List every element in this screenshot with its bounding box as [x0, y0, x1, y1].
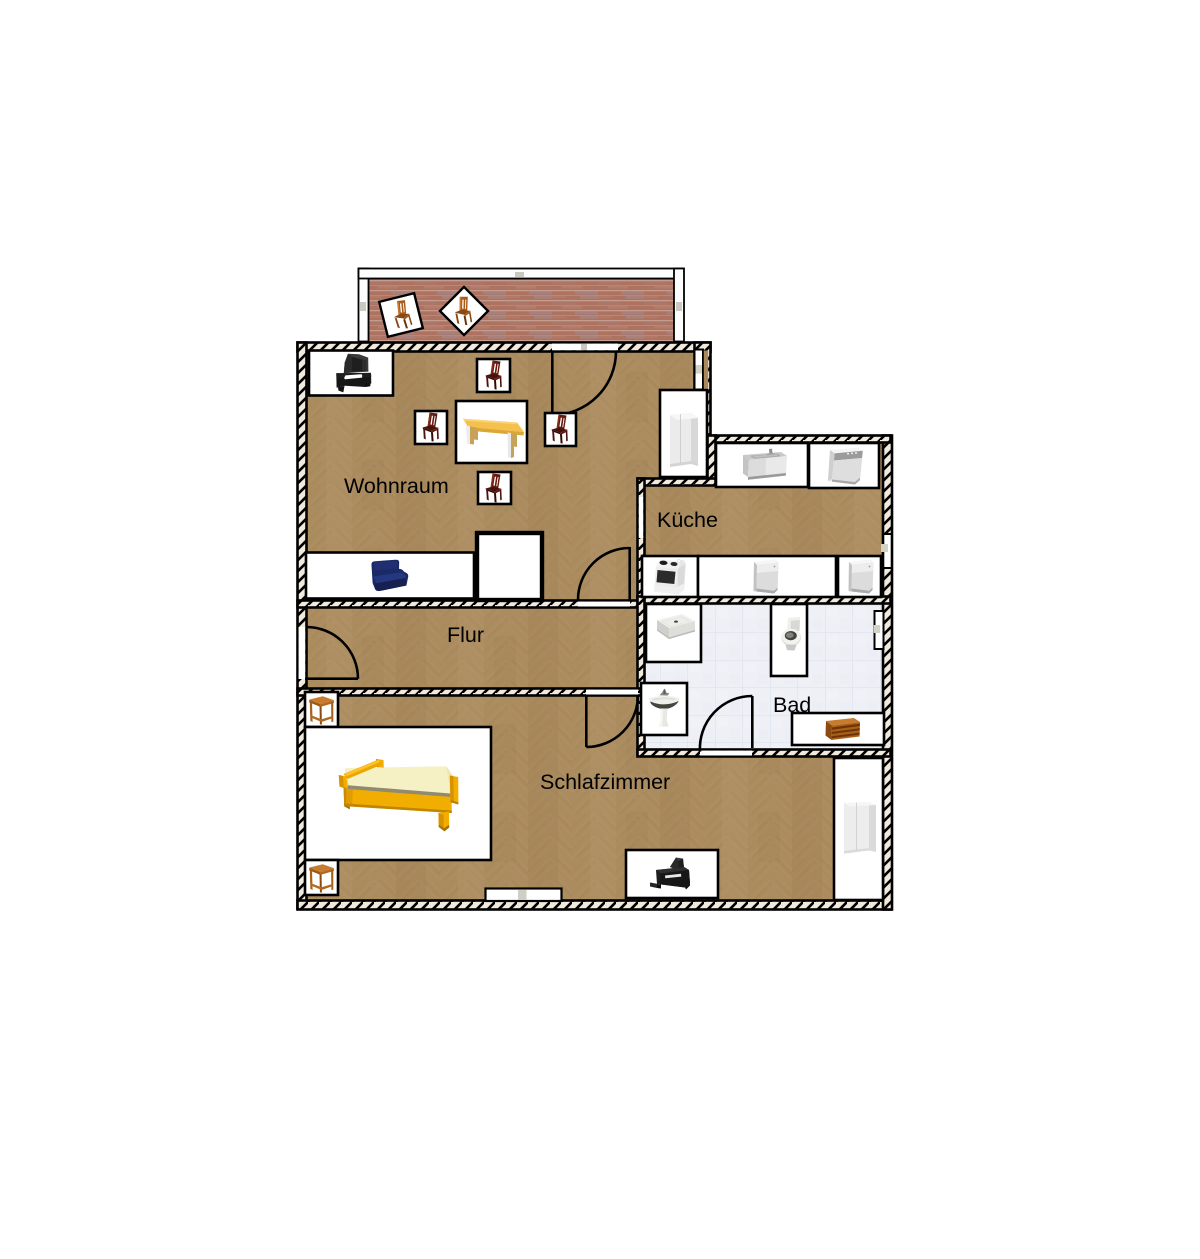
svg-text:Schlafzimmer: Schlafzimmer: [540, 770, 670, 794]
svg-text:Wohnraum: Wohnraum: [344, 474, 449, 498]
svg-text:Flur: Flur: [447, 623, 484, 647]
svg-text:Küche: Küche: [657, 508, 718, 532]
